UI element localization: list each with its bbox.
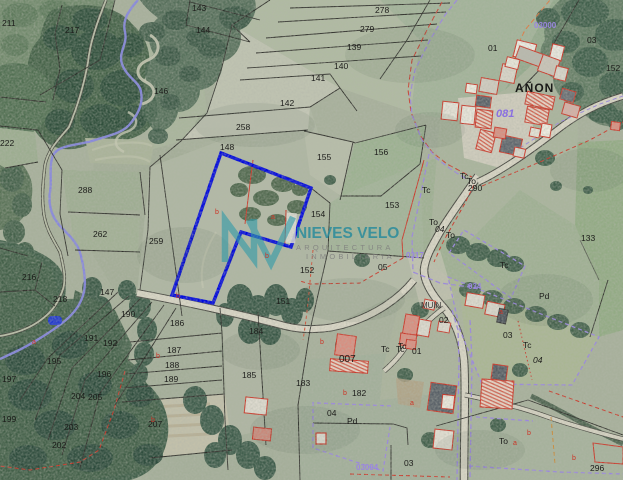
svg-text:01: 01: [412, 346, 422, 356]
svg-text:183: 183: [296, 378, 310, 388]
svg-text:Tc: Tc: [381, 344, 390, 354]
svg-text:222: 222: [0, 138, 14, 148]
svg-text:a: a: [32, 339, 36, 346]
svg-text:192: 192: [103, 338, 117, 348]
svg-text:204: 204: [71, 391, 85, 401]
svg-text:To: To: [499, 436, 508, 446]
svg-text:139: 139: [347, 42, 361, 52]
svg-text:188: 188: [165, 360, 179, 370]
svg-text:147: 147: [100, 287, 114, 297]
svg-text:a: a: [271, 214, 275, 221]
svg-text:04: 04: [435, 224, 445, 234]
svg-text:143: 143: [192, 3, 206, 13]
svg-text:04: 04: [533, 355, 543, 365]
svg-text:b: b: [176, 293, 180, 300]
svg-text:b: b: [265, 253, 269, 260]
svg-text:b: b: [572, 455, 576, 462]
svg-text:a: a: [513, 440, 517, 447]
svg-text:140: 140: [334, 61, 348, 71]
svg-text:Tc: Tc: [523, 340, 532, 350]
svg-text:0317: 0317: [406, 251, 424, 260]
svg-text:INMOBILIARIA: INMOBILIARIA: [306, 252, 395, 261]
svg-text:01: 01: [488, 43, 498, 53]
svg-text:146: 146: [154, 86, 168, 96]
svg-text:03: 03: [503, 330, 513, 340]
svg-text:b: b: [156, 353, 160, 360]
svg-text:296: 296: [590, 463, 604, 473]
svg-text:Tc: Tc: [396, 344, 405, 354]
svg-text:186: 186: [170, 318, 184, 328]
svg-text:To: To: [446, 230, 455, 240]
svg-text:153: 153: [385, 200, 399, 210]
svg-text:144: 144: [196, 25, 210, 35]
svg-text:189: 189: [164, 374, 178, 384]
svg-text:Tc: Tc: [500, 260, 509, 270]
svg-text:142: 142: [280, 98, 294, 108]
svg-text:b: b: [320, 339, 324, 346]
svg-text:Pd: Pd: [347, 416, 358, 426]
svg-text:Tc: Tc: [422, 185, 431, 195]
svg-text:MUIN: MUIN: [421, 301, 442, 310]
svg-text:141: 141: [311, 73, 325, 83]
svg-text:217: 217: [65, 25, 79, 35]
svg-text:190: 190: [121, 309, 135, 319]
svg-text:a: a: [410, 400, 414, 407]
svg-text:a: a: [499, 309, 503, 316]
svg-text:184: 184: [249, 326, 263, 336]
svg-text:187: 187: [167, 345, 181, 355]
svg-text:04: 04: [327, 408, 337, 418]
svg-text:133: 133: [581, 233, 595, 243]
svg-text:199: 199: [2, 414, 16, 424]
svg-text:03: 03: [404, 458, 414, 468]
svg-text:196: 196: [97, 369, 111, 379]
svg-text:258: 258: [236, 122, 250, 132]
svg-text:182: 182: [352, 388, 366, 398]
svg-text:b: b: [527, 430, 531, 437]
svg-text:216: 216: [22, 272, 36, 282]
svg-text:211: 211: [2, 18, 16, 28]
svg-text:156: 156: [374, 147, 388, 157]
svg-text:259: 259: [149, 236, 163, 246]
svg-text:NIEVES VELO: NIEVES VELO: [296, 225, 399, 242]
svg-text:081: 081: [496, 108, 514, 120]
svg-text:152: 152: [300, 265, 314, 275]
svg-text:AÑON: AÑON: [515, 80, 554, 95]
svg-text:195: 195: [47, 356, 61, 366]
svg-text:202: 202: [52, 440, 66, 450]
svg-text:185: 185: [242, 370, 256, 380]
svg-text:152: 152: [606, 63, 620, 73]
svg-text:154: 154: [311, 209, 325, 219]
svg-text:203: 203: [64, 422, 78, 432]
svg-text:03000: 03000: [534, 21, 557, 30]
svg-text:034: 034: [468, 282, 482, 291]
svg-text:To: To: [467, 176, 476, 186]
svg-text:148: 148: [220, 142, 234, 152]
svg-text:151: 151: [276, 296, 290, 306]
svg-text:218: 218: [53, 294, 67, 304]
svg-text:05: 05: [378, 262, 388, 272]
svg-text:007: 007: [339, 354, 356, 365]
svg-text:262: 262: [93, 229, 107, 239]
svg-text:278: 278: [375, 5, 389, 15]
svg-text:02: 02: [439, 315, 449, 325]
svg-text:03004: 03004: [356, 463, 379, 472]
svg-text:197: 197: [2, 374, 16, 384]
svg-text:b: b: [151, 417, 155, 424]
svg-text:b: b: [215, 209, 219, 216]
svg-text:ARQUITECTURA: ARQUITECTURA: [296, 243, 394, 252]
svg-text:288: 288: [78, 185, 92, 195]
svg-text:03: 03: [587, 35, 597, 45]
svg-text:155: 155: [317, 152, 331, 162]
svg-text:205: 205: [88, 392, 102, 402]
svg-text:279: 279: [360, 24, 374, 34]
svg-text:Pd: Pd: [539, 291, 550, 301]
svg-text:191: 191: [84, 333, 98, 343]
svg-text:b: b: [343, 390, 347, 397]
